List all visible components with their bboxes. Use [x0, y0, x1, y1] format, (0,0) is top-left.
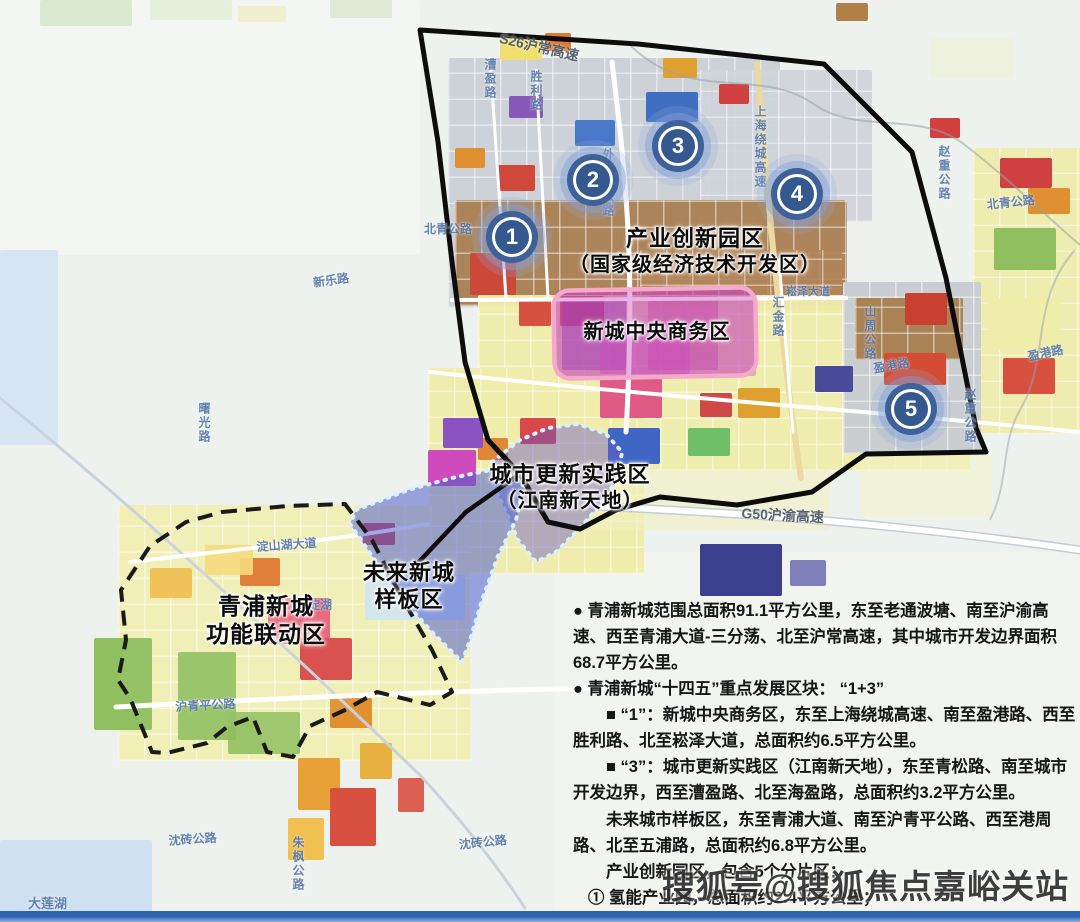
- zone-label-future-city-model-area: 未来新城样板区: [350, 560, 468, 614]
- zone-label-industry-innovation-park: 产业创新园区（国家级经济技术开发区）: [540, 226, 850, 277]
- note-line: 未来城市样板区，东至青浦大道、南至沪青平公路、西至港周路、北至五浦路，总面积约6…: [573, 807, 1078, 859]
- zone-label-line: 产业创新园区: [540, 226, 850, 253]
- bottom-bar: [0, 911, 1080, 922]
- road-label: G50沪渝高速: [741, 503, 824, 527]
- zone-label-line: （江南新天地）: [460, 489, 680, 513]
- zone-label-line: （国家级经济技术开发区）: [540, 253, 850, 277]
- road-label: 大莲湖: [28, 893, 67, 912]
- planning-map: 新乐路曙光路大莲湖沈砖公路朱枫公路沈砖公路沪青平公路G50沪渝高速S26沪常高速…: [0, 0, 1080, 922]
- zone-label-line: 青浦新城: [186, 592, 346, 620]
- admin-boundary-line: [630, 45, 1080, 245]
- road-label: 曙光路: [196, 402, 213, 444]
- zone-label-line: 新城中央商务区: [562, 320, 752, 344]
- zone-marker-3: 3: [661, 129, 695, 163]
- road-label: 赵重公路: [962, 388, 979, 444]
- zone-label-linkage-area: 青浦新城功能联动区: [186, 592, 346, 648]
- zone-label-line: 功能联动区: [186, 620, 346, 648]
- zone-label-line: 城市更新实践区: [460, 462, 680, 489]
- zone-marker-1: 1: [495, 220, 529, 254]
- zone-marker-2: 2: [576, 163, 610, 197]
- road-label: 汇金路: [770, 296, 787, 338]
- zone-marker-4: 4: [780, 177, 814, 211]
- note-line: ● 青浦新城范围总面积91.1平方公里，东至老通波塘、南至沪渝高速、西至青浦大道…: [573, 598, 1078, 676]
- road-label: 漕盈路: [482, 58, 499, 100]
- note-line: ■ “3”：城市更新实践区（江南新天地），东至青松路、南至城市开发边界，西至漕盈…: [573, 754, 1078, 806]
- yinggang-road: [430, 372, 1080, 432]
- note-line: ■ “1”：新城中央商务区，东至上海绕城高速、南至盈港路、西至胜利路、北至崧泽大…: [573, 702, 1078, 754]
- zone-marker-5: 5: [894, 392, 928, 426]
- road-label: 沈砖公路: [168, 829, 217, 849]
- road-label: 赵重公路: [936, 145, 953, 201]
- road-label: 朱枫公路: [290, 836, 307, 892]
- road-label: 北青公路: [424, 220, 472, 237]
- admin-boundary-line: [990, 250, 1075, 520]
- note-line: ● 青浦新城“十四五”重点发展区块： “1+3”: [573, 676, 1078, 702]
- road-label: 上海绕城高速: [752, 105, 769, 189]
- zone-label-urban-renewal-area: 城市更新实践区（江南新天地）: [460, 462, 680, 513]
- road-label: 山周公路: [862, 305, 879, 361]
- zone-label-line: 未来新城: [350, 560, 468, 587]
- road-label: 沪青平公路: [175, 695, 236, 715]
- road-label: 崧泽大道: [786, 283, 830, 299]
- zone-label-new-city-cbd: 新城中央商务区: [562, 320, 752, 344]
- zone-label-line: 样板区: [350, 587, 468, 614]
- road-label: 胜利路: [528, 70, 545, 112]
- watermark: 搜狐号@搜狐焦点嘉峪关站: [662, 860, 1069, 908]
